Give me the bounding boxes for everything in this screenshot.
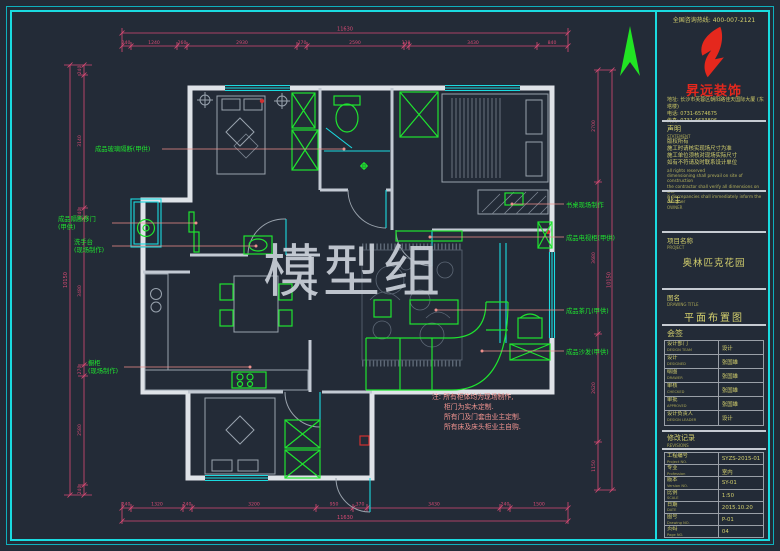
blanket: [226, 118, 254, 146]
sink-bowl: [151, 302, 161, 312]
bed: [442, 94, 548, 182]
sink-bowl: [151, 289, 162, 300]
team-table-row: 设计负责人DESIGN LEADER 设计: [665, 411, 763, 425]
watermark: 模型组: [263, 226, 443, 308]
dim-text: 2620: [591, 382, 597, 394]
pillow: [526, 142, 542, 176]
bathroom-fixtures: [324, 96, 390, 170]
floor-drain: [360, 162, 368, 170]
callout-kitchen-cabinet: 橱柜: [88, 358, 101, 367]
dim-text: 840: [548, 40, 557, 46]
dim-bottom-total: 11630: [337, 515, 353, 521]
shower-glass: [326, 128, 352, 148]
dim-text: 2590: [349, 40, 361, 46]
stove: [232, 372, 266, 388]
title-block: 全国咨询热线: 400-007-2121 昇远装饰 地址: 长沙市芙蓉区朝阳路佳…: [662, 12, 766, 539]
callout-sofa: 成品沙发(甲供): [566, 347, 609, 356]
dim-text: 1500: [533, 502, 545, 508]
blanket: [234, 134, 258, 158]
callout-partition-door: 成品隔断移门: [58, 214, 96, 223]
hotline: 全国咨询热线: 400-007-2121: [662, 15, 766, 24]
callout-partition-door: (甲供): [58, 222, 76, 231]
dim-text: 2580: [77, 424, 83, 436]
pillow: [244, 99, 262, 110]
dim-text: 240: [122, 40, 131, 46]
dim-left-total: 10150: [63, 272, 69, 288]
statement-line: 如有不符请及时联系设计单位: [667, 160, 766, 167]
team-table: 设计部门DESIGN TEAM 设计 设计DESIGNED 张国雄 绘图DRAW…: [664, 340, 764, 426]
note-line: 所有门及门套由业主定制.: [444, 412, 521, 421]
dim-top-total: 11630: [337, 27, 353, 33]
note-line: 所有床及床头柜业主自购.: [444, 422, 521, 431]
dim-text: 3680: [591, 252, 597, 264]
bed: [205, 398, 275, 474]
statement-en-line: the contractor shall verify all dimensio…: [667, 184, 766, 194]
dim-text: 370: [356, 502, 365, 508]
bedroom1-furniture: [197, 92, 318, 174]
pillow: [212, 460, 232, 471]
address: 地址: 长沙市芙蓉区朝阳路佳天国际大厦 (东塔楼): [667, 97, 766, 111]
dim-text: 240: [77, 66, 83, 75]
bed: [217, 96, 265, 174]
dining-chair: [220, 284, 233, 300]
desk-chair: [505, 193, 523, 205]
company-logo-icon: [691, 25, 737, 79]
bedroom2-furniture: [400, 92, 550, 234]
pillow: [222, 99, 240, 110]
dim-text: 1150: [591, 460, 597, 472]
toilet: [336, 104, 358, 132]
cad-sheet: 11630 240 1240 260 2930 270 2590 130 343…: [0, 0, 780, 551]
blanket: [226, 416, 254, 444]
callout-desk: 书桌现场制作: [566, 200, 604, 209]
bedroom3-furniture: [205, 398, 369, 478]
dimension-text-bottom: 240 1320 240 3200 950 370 3430 240 1500 …: [122, 502, 545, 522]
pillow: [238, 460, 258, 471]
divider: [662, 448, 766, 450]
team-table-row: 设计部门DESIGN TEAM 设计: [665, 341, 763, 355]
dim-text: 950: [330, 502, 339, 508]
drawing-title: 平面布置图: [662, 309, 766, 324]
drawing-title-label: 图名 DRAWING TITLE: [662, 292, 766, 307]
statement-lines: 版权所有 施工时请核实现场尺寸为准 施工单位须核对现场实际尺寸 如有不符请及时联…: [662, 139, 766, 167]
revision-label: 修改记录 REVISIONS: [662, 433, 766, 448]
statement-line: 版权所有: [667, 139, 766, 146]
dining-chair: [220, 310, 233, 326]
dim-text: 260: [178, 40, 187, 46]
dim-text: 2930: [236, 40, 248, 46]
dimension-text-left: 10150 240 3140 240 3480 270 2580 240: [63, 66, 83, 495]
divider: [662, 430, 766, 432]
dim-text: 3140: [77, 135, 83, 147]
balcony-cabinet: [510, 344, 550, 360]
sign-label: 会签: [662, 328, 766, 339]
team-table-row: 审核CHECKED 张国雄: [665, 383, 763, 397]
dim-text: 3480: [77, 285, 83, 297]
statement-label: 声明 STATEMENT: [662, 124, 766, 139]
info-table-row: 页码Page NO. 04: [665, 526, 763, 538]
dim-text: 270: [298, 40, 307, 46]
callout-glass-partition: 成品玻璃隔断(甲供): [95, 144, 150, 153]
statement-en-line: dimensioning shall prevail on site of co…: [667, 173, 766, 183]
info-table-row: 版本Version NO. SY-01: [665, 477, 763, 489]
dimension-text-right: 2700 3680 2620 1150 10150: [591, 120, 613, 472]
info-table-row: 专业Profession 室内: [665, 465, 763, 477]
dim-text: 1320: [151, 502, 163, 508]
divider: [662, 120, 766, 122]
kitchen-counter-bottom: [145, 370, 308, 390]
dim-text: 240: [183, 502, 192, 508]
dim-text: 130: [402, 40, 411, 46]
divider: [662, 324, 766, 326]
dim-text: 3200: [248, 502, 260, 508]
note-line: 注: 所有柜体均为现场制作,: [432, 392, 513, 401]
dim-text: 240: [501, 502, 510, 508]
pillow: [526, 100, 542, 134]
project-name: 奥林匹克花园: [662, 255, 766, 269]
info-table-row: 图号Drawing NO. P-01: [665, 514, 763, 526]
project-label: 项目名称 PROJECT: [662, 235, 766, 250]
info-table: 工程编号Project NO. SYZS-2015-01 专业Professio…: [664, 452, 764, 538]
dim-text: 3430: [467, 40, 479, 46]
info-table-row: 日期DATE 2015.10.20: [665, 502, 763, 514]
callout-kitchen-cabinet: (现场制作): [88, 366, 118, 375]
divider: [662, 231, 766, 233]
marker-dot: [260, 99, 264, 103]
dim-text: 240: [77, 486, 83, 495]
callout-wash-basin: 洗手台: [74, 237, 93, 246]
statement-line: 施工时请核实现场尺寸为准: [667, 146, 766, 153]
dim-right-total: 10150: [607, 272, 613, 288]
balcony-chair: [518, 314, 542, 338]
callout-wash-basin: (现场制作): [74, 245, 104, 254]
team-table-row: 审批APPROVED 张国雄: [665, 397, 763, 411]
callout-tea-table: 成品茶几(甲供): [566, 306, 609, 315]
sliding-door-panel: [189, 212, 194, 232]
dim-text: 3430: [428, 502, 440, 508]
washing-machine: [138, 220, 155, 237]
team-table-row: 绘图DRAWER 张国雄: [665, 369, 763, 383]
info-table-row: 工程编号Project NO. SYZS-2015-01: [665, 453, 763, 465]
info-table-row: 比例SCALE 1:50: [665, 490, 763, 502]
desk: [478, 190, 548, 214]
dining-chair: [279, 310, 292, 326]
dim-text: 240: [122, 502, 131, 508]
dim-text: 2700: [591, 120, 597, 132]
sliding-door-panel: [194, 232, 199, 252]
divider: [662, 288, 766, 290]
phone: 电话: 0731-6574675: [667, 111, 766, 118]
dim-text: 1240: [148, 40, 160, 46]
callout-tv-cabinet: 成品电视柜(甲供): [566, 233, 615, 242]
team-table-row: 设计DESIGNED 张国雄: [665, 355, 763, 369]
dim-text: 270: [77, 366, 83, 375]
plan-notes: 注: 所有柜体均为现场制作, 柜门为实木定制. 所有门及门套由业主定制. 所有床…: [432, 392, 521, 431]
divider: [662, 190, 766, 192]
statement-line: 施工单位须核对现场实际尺寸: [667, 153, 766, 160]
north-arrow-icon: [620, 26, 640, 76]
owner-label: 业主 OWNER: [662, 195, 766, 210]
note-line: 柜门为实木定制.: [444, 402, 494, 411]
entry-marker: [360, 436, 369, 445]
